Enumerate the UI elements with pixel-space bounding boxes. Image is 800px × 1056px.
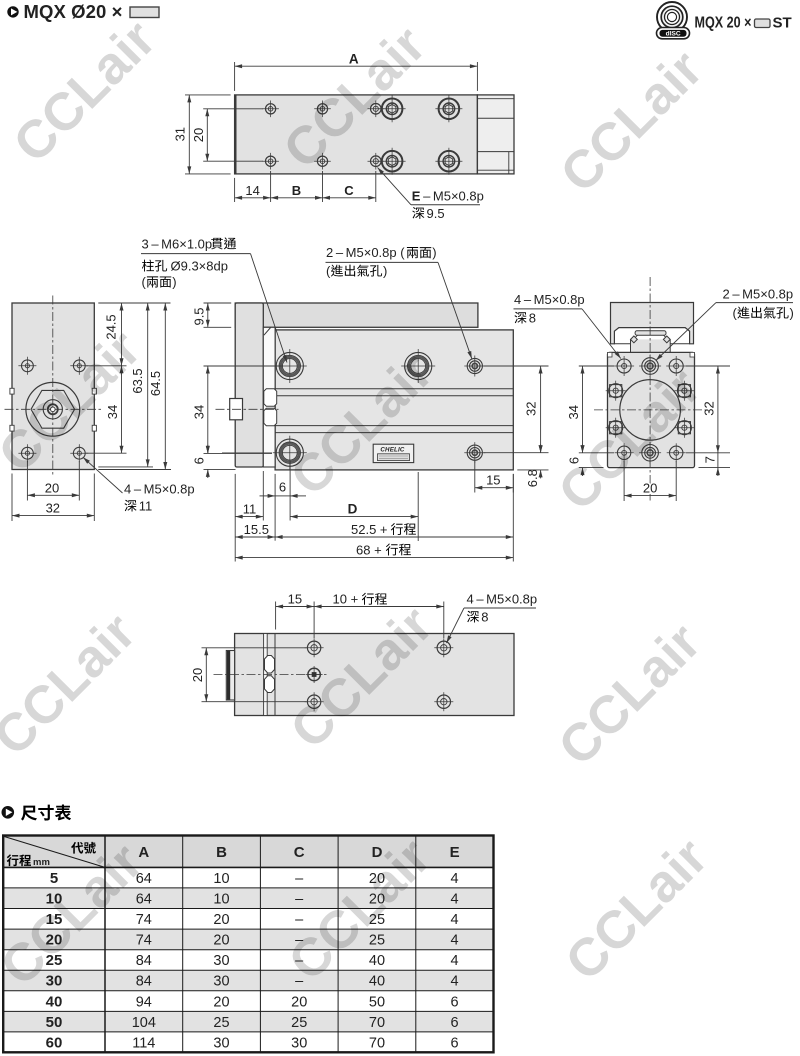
svg-text:4 – M5×0.8p: 4 – M5×0.8p	[467, 591, 538, 606]
svg-text:15: 15	[486, 473, 500, 488]
svg-text:4: 4	[451, 953, 459, 969]
svg-text:6.8: 6.8	[525, 469, 540, 487]
svg-text:9.5: 9.5	[191, 307, 206, 325]
svg-text:70: 70	[369, 1015, 385, 1031]
svg-text:20: 20	[213, 994, 229, 1010]
svg-text:15: 15	[288, 592, 302, 607]
svg-text:(: (	[733, 306, 738, 321]
svg-text:): )	[383, 264, 387, 279]
svg-text:64.5: 64.5	[148, 371, 163, 396]
svg-text:9.5: 9.5	[427, 206, 445, 221]
svg-text:34: 34	[566, 405, 581, 419]
svg-text:7: 7	[703, 456, 718, 463]
svg-text:8: 8	[529, 311, 536, 326]
svg-text:E: E	[450, 844, 460, 861]
svg-text:11: 11	[243, 502, 257, 517]
svg-text:74: 74	[136, 912, 152, 928]
svg-text:3 – M6×1.0p: 3 – M6×1.0p	[142, 236, 213, 251]
svg-text:64: 64	[136, 891, 152, 907]
svg-text:34: 34	[105, 405, 120, 419]
svg-text:20: 20	[213, 933, 229, 949]
svg-text:40: 40	[46, 993, 63, 1010]
svg-text:20: 20	[643, 481, 657, 496]
svg-text:10 +: 10 +	[333, 592, 359, 607]
svg-text:30: 30	[213, 974, 229, 990]
svg-text:B: B	[216, 844, 227, 861]
svg-text:4: 4	[451, 933, 459, 949]
svg-text:mm: mm	[33, 857, 50, 868]
svg-text:D: D	[348, 502, 358, 517]
svg-text:2 – M5×0.8p: 2 – M5×0.8p	[723, 286, 794, 301]
svg-text:14: 14	[245, 183, 259, 198]
svg-text:30: 30	[213, 953, 229, 969]
svg-text:32: 32	[524, 402, 539, 416]
svg-text:–: –	[295, 871, 304, 887]
svg-text:10: 10	[213, 891, 229, 907]
svg-text:30: 30	[291, 1035, 307, 1051]
svg-text:40: 40	[369, 953, 385, 969]
svg-text:84: 84	[136, 974, 152, 990]
svg-text:20: 20	[190, 668, 205, 682]
svg-text:30: 30	[213, 1035, 229, 1051]
svg-text:60: 60	[46, 1034, 63, 1051]
svg-text:C: C	[294, 844, 305, 861]
svg-text:114: 114	[132, 1035, 155, 1051]
svg-text:4: 4	[451, 871, 459, 887]
svg-text:20: 20	[45, 480, 59, 495]
svg-text:11: 11	[139, 499, 153, 514]
svg-text:6: 6	[451, 1015, 459, 1031]
svg-text:E – M5×0.8p: E – M5×0.8p	[412, 188, 484, 203]
svg-text:68 +: 68 +	[356, 542, 382, 557]
svg-text:MQX 20 ×: MQX 20 ×	[695, 15, 752, 32]
svg-text:10: 10	[213, 871, 229, 887]
svg-text:6: 6	[279, 480, 286, 495]
svg-text:94: 94	[136, 994, 152, 1010]
svg-text:MQX Ø20 ×: MQX Ø20 ×	[24, 1, 123, 22]
svg-text:25: 25	[213, 1015, 229, 1031]
svg-text:6: 6	[192, 457, 207, 464]
svg-text:6: 6	[451, 994, 459, 1010]
svg-text:74: 74	[136, 933, 152, 949]
svg-text:2 – M5×0.8p (: 2 – M5×0.8p (	[326, 245, 405, 260]
svg-text:–: –	[295, 891, 304, 907]
svg-text:84: 84	[136, 953, 152, 969]
svg-text:8: 8	[481, 610, 488, 625]
svg-text:(: (	[326, 264, 331, 279]
svg-text:104: 104	[132, 1015, 156, 1031]
svg-text:20: 20	[213, 912, 229, 928]
svg-text:B: B	[292, 183, 301, 198]
svg-text:40: 40	[369, 974, 385, 990]
svg-text:dISC: dISC	[666, 30, 681, 37]
svg-text:20: 20	[291, 994, 307, 1010]
svg-text:6: 6	[451, 1035, 459, 1051]
svg-text:15.5: 15.5	[244, 522, 269, 537]
svg-text:C: C	[344, 183, 354, 198]
svg-text:50: 50	[46, 1014, 63, 1031]
svg-text:32: 32	[46, 501, 60, 516]
svg-text:31: 31	[173, 127, 188, 141]
svg-text:A: A	[138, 844, 149, 861]
svg-text:50: 50	[369, 994, 385, 1010]
svg-text:CHELIC: CHELIC	[380, 447, 405, 454]
svg-text:4: 4	[451, 912, 459, 928]
svg-text:): )	[172, 275, 176, 290]
svg-text:4: 4	[451, 891, 459, 907]
svg-text:25: 25	[291, 1015, 307, 1031]
svg-text:(: (	[142, 275, 147, 290]
svg-text:4 – M5×0.8p: 4 – M5×0.8p	[124, 481, 195, 496]
svg-text:Ø9.3×8dp: Ø9.3×8dp	[171, 259, 228, 274]
svg-text:34: 34	[192, 405, 207, 419]
svg-text:52.5 +: 52.5 +	[351, 522, 388, 537]
svg-text:4 – M5×0.8p: 4 – M5×0.8p	[514, 292, 585, 307]
svg-text:70: 70	[369, 1035, 385, 1051]
svg-text:5: 5	[50, 870, 58, 887]
svg-text:ST: ST	[773, 15, 792, 32]
svg-text:): )	[790, 306, 794, 321]
svg-text:20: 20	[191, 128, 206, 142]
svg-text:4: 4	[451, 974, 459, 990]
svg-text:): )	[432, 245, 436, 260]
